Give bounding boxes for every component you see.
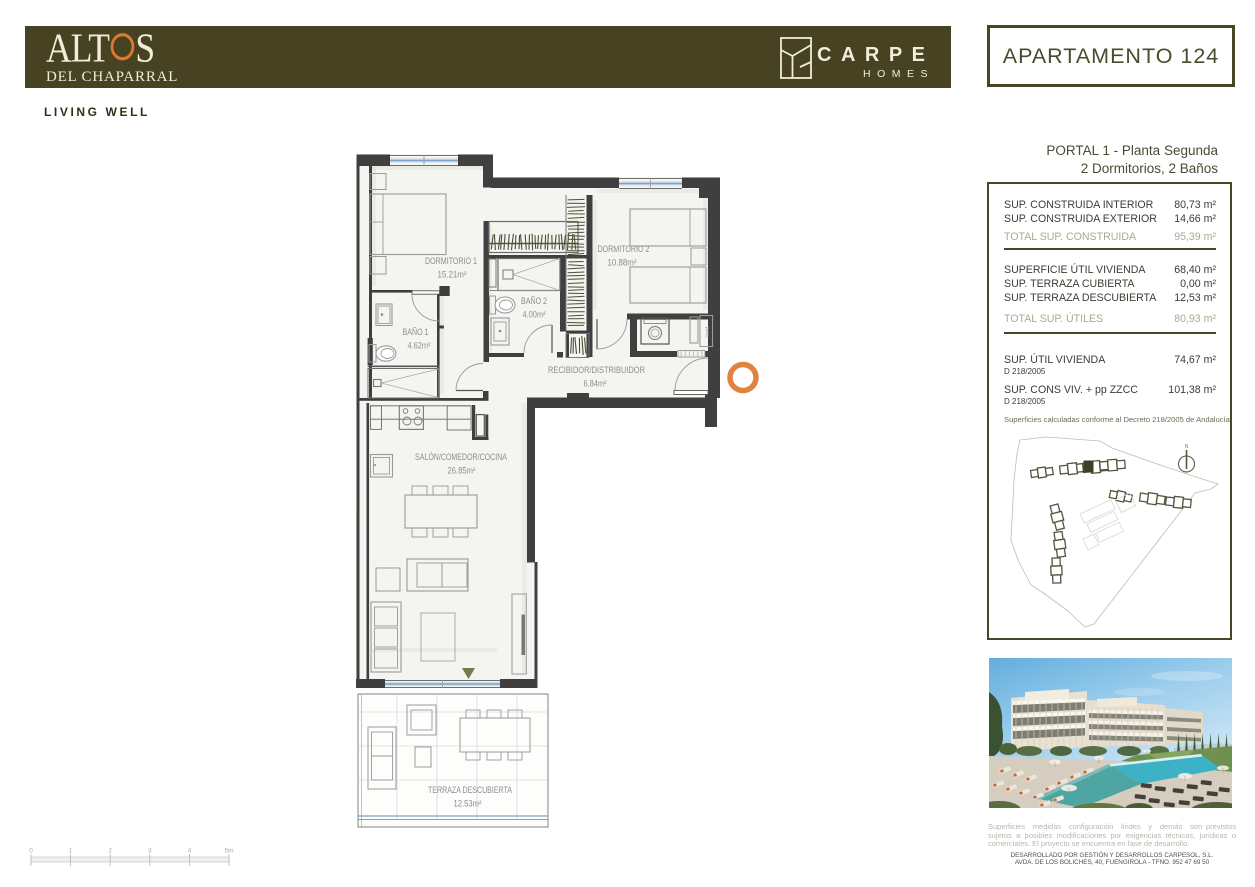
svg-text:4.62m²: 4.62m² — [408, 341, 431, 351]
svg-text:2: 2 — [108, 848, 112, 855]
svg-text:0: 0 — [29, 848, 33, 855]
svg-text:4.00m²: 4.00m² — [523, 310, 546, 320]
svg-text:DORMITORIO 2: DORMITORIO 2 — [598, 244, 650, 254]
svg-text:TERRAZA DESCUBIERTA: TERRAZA DESCUBIERTA — [428, 785, 512, 795]
svg-text:10.88m²: 10.88m² — [608, 258, 637, 268]
svg-text:BAÑO 2: BAÑO 2 — [521, 296, 547, 306]
svg-text:RECIBIDOR/DISTRIBUIDOR: RECIBIDOR/DISTRIBUIDOR — [548, 365, 645, 375]
svg-text:12.53m²: 12.53m² — [454, 799, 482, 809]
svg-text:SALÓN/COMEDOR/COCINA: SALÓN/COMEDOR/COCINA — [415, 452, 507, 462]
svg-text:26.85m²: 26.85m² — [448, 466, 476, 476]
svg-text:6.84m²: 6.84m² — [584, 379, 607, 389]
svg-text:3: 3 — [148, 848, 152, 855]
svg-text:15.21m²: 15.21m² — [438, 270, 467, 280]
svg-text:4: 4 — [188, 848, 192, 855]
svg-text:5m: 5m — [224, 848, 233, 855]
svg-text:tend.: tend. — [705, 325, 711, 336]
svg-text:1: 1 — [69, 848, 73, 855]
svg-text:DORMITORIO 1: DORMITORIO 1 — [425, 256, 477, 266]
svg-text:BAÑO 1: BAÑO 1 — [403, 327, 429, 337]
